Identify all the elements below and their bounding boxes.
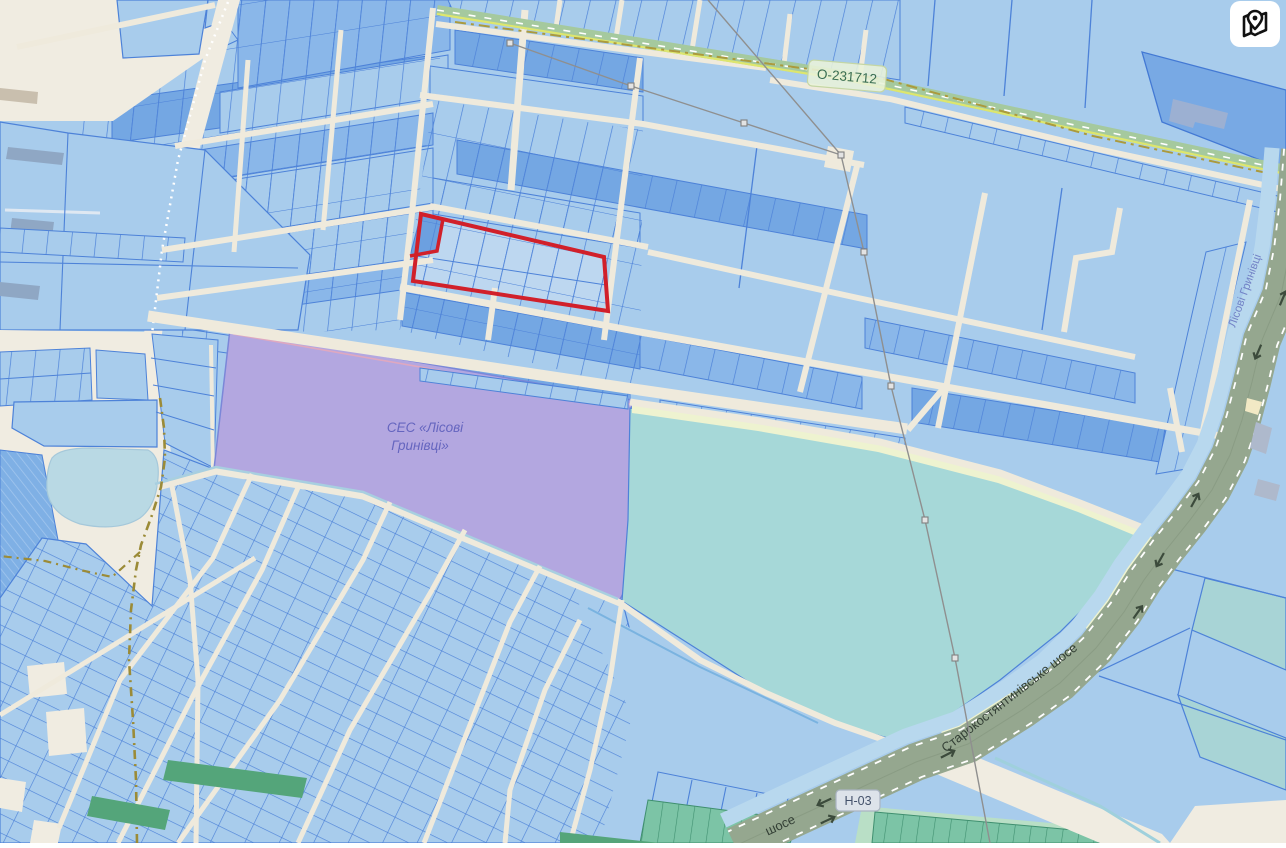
svg-text:СЕС «Лісові: СЕС «Лісові <box>387 420 464 435</box>
svg-text:Н-03: Н-03 <box>844 794 871 808</box>
svg-text:Гринівці»: Гринівці» <box>391 438 448 453</box>
